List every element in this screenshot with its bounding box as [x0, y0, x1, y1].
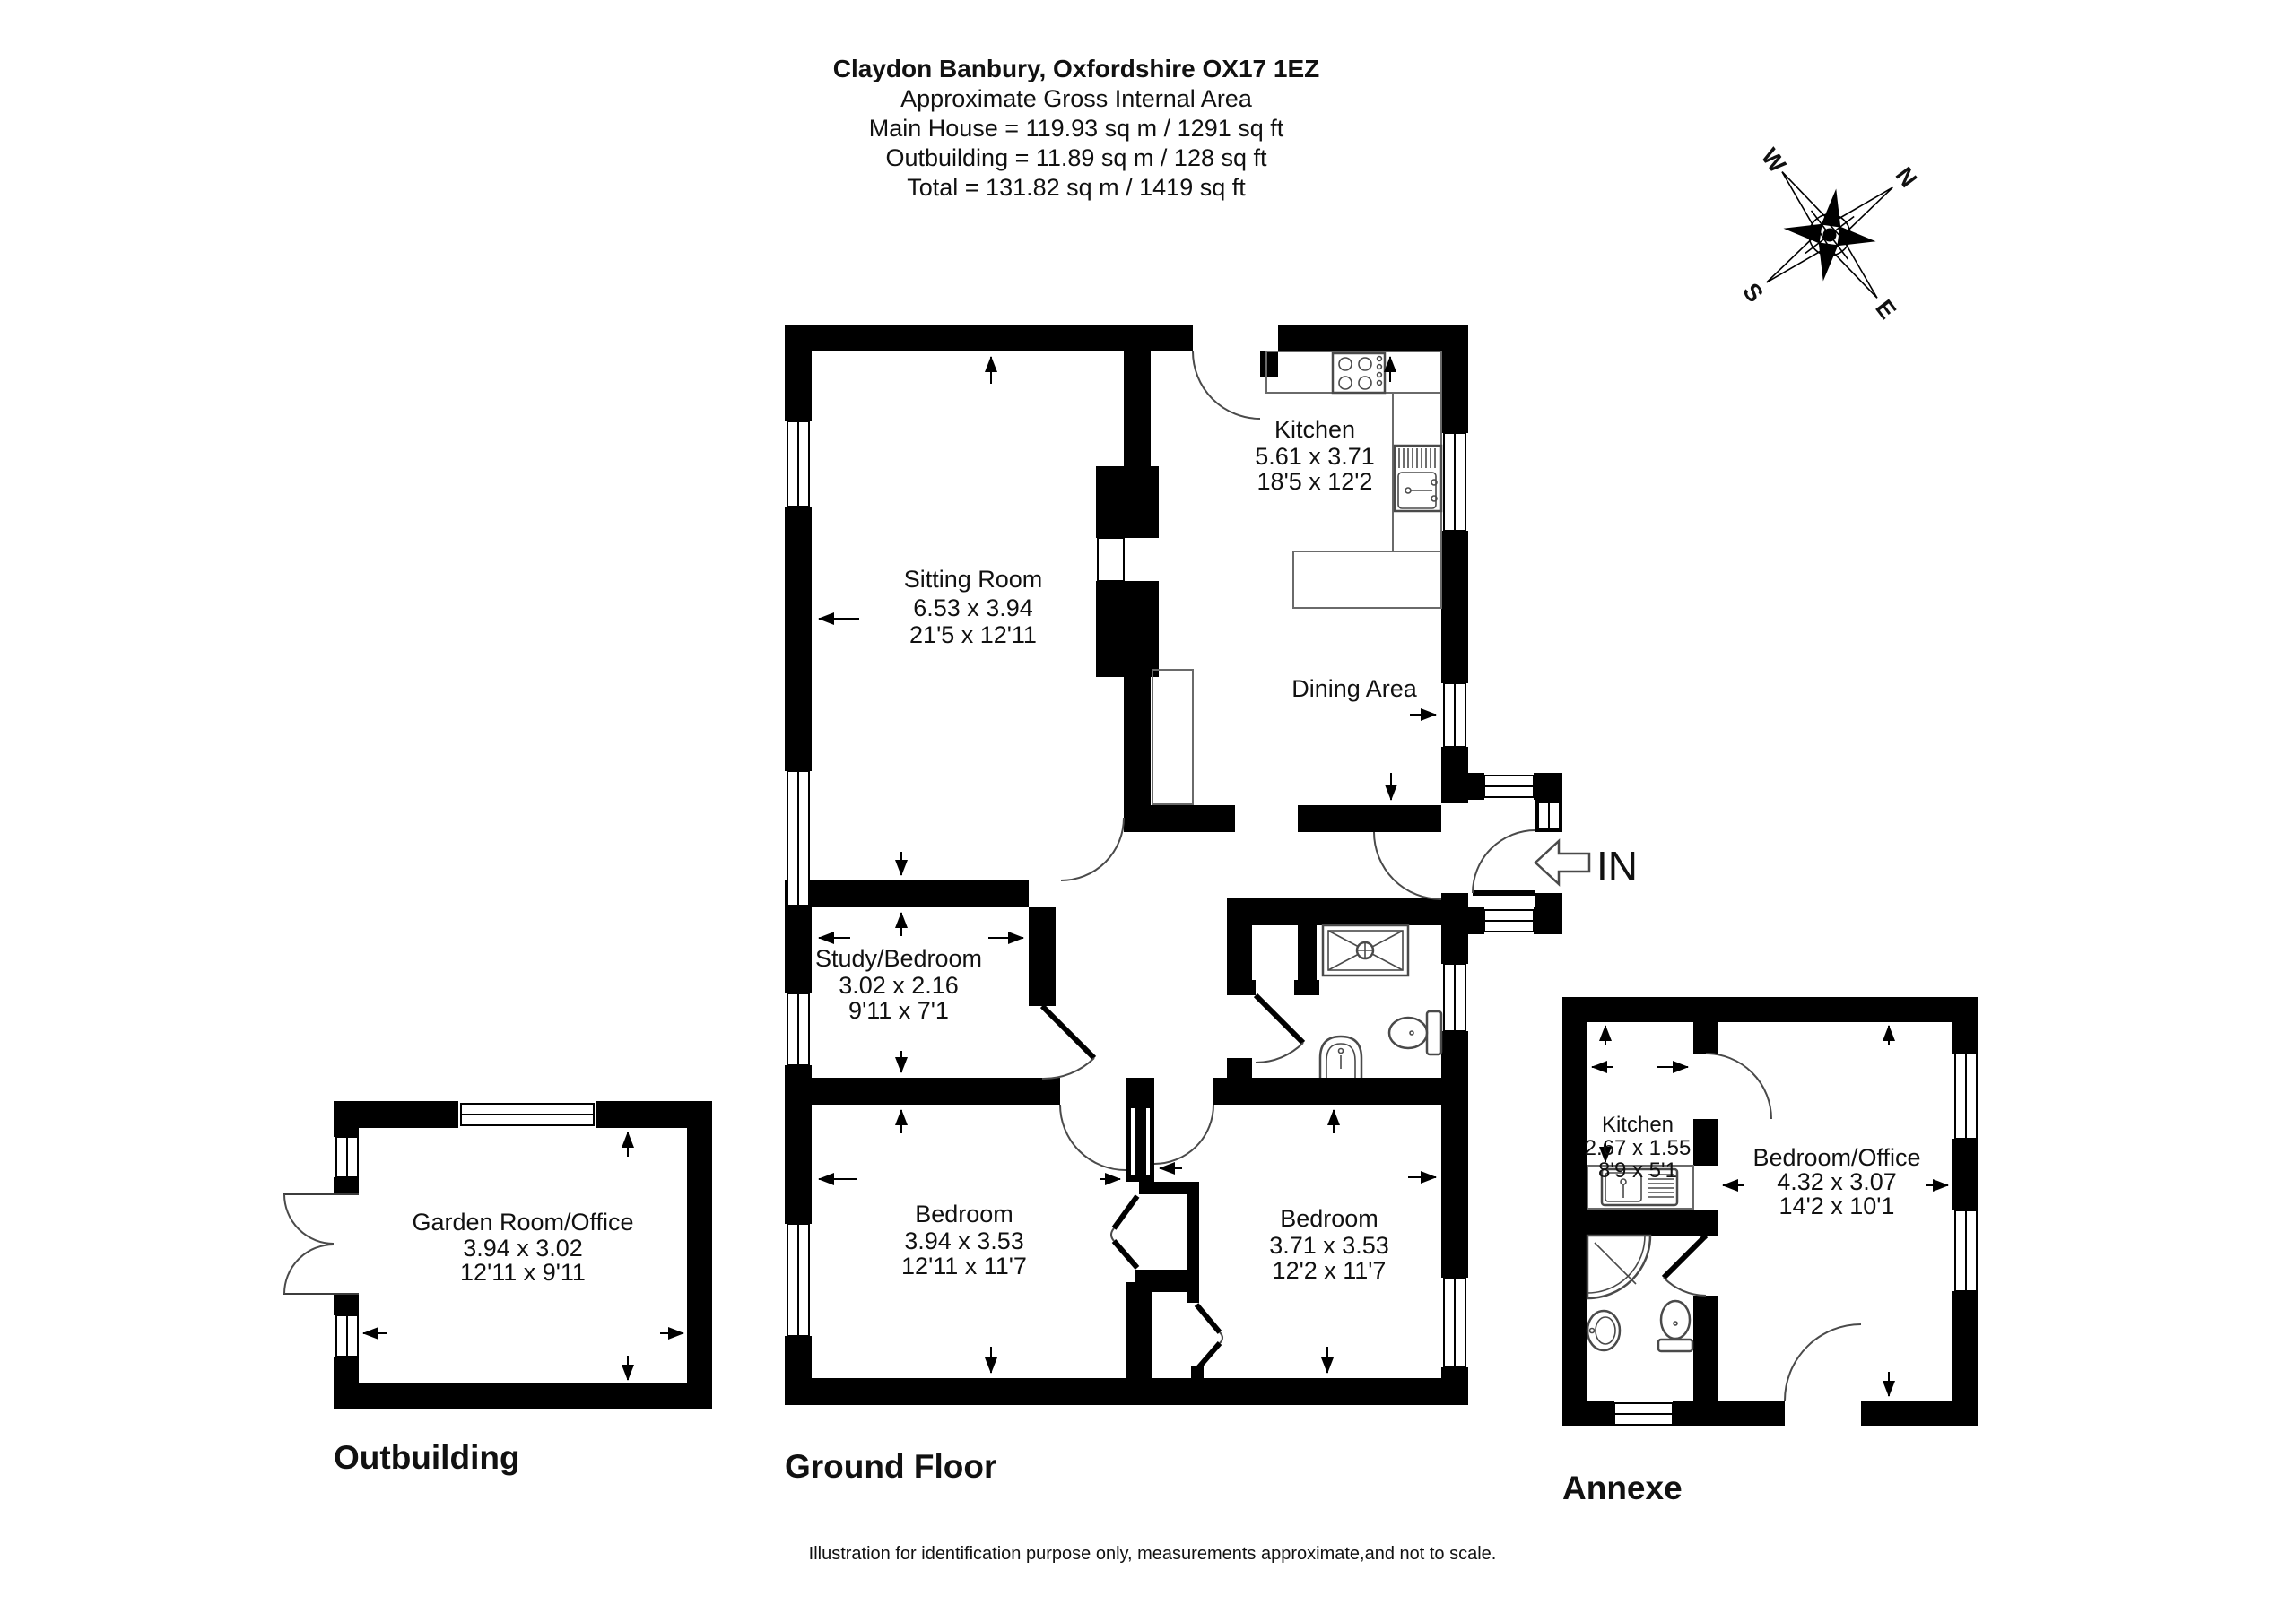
entrance-marker: IN	[1535, 841, 1638, 889]
dining-side-unit	[1152, 670, 1193, 804]
bathroom-door-arc	[1256, 1043, 1303, 1063]
room-dim-metric: 3.94 x 3.53	[904, 1227, 1024, 1254]
annexe-toilet-icon	[1658, 1301, 1692, 1351]
window-glyph	[787, 421, 809, 507]
sitting-hall-door-arc	[1061, 818, 1124, 880]
bedroom1-door-arc	[1060, 1105, 1126, 1170]
room-label-bedroom-2: Bedroom 3.71 x 3.53 12'2 x 11'7	[1269, 1205, 1389, 1284]
floorplan-drawing: IN	[0, 0, 2296, 1622]
annexe-kitchen-door-arc	[1706, 1054, 1771, 1119]
room-dim-metric: 2.67 x 1.55	[1585, 1136, 1692, 1160]
room-dim-metric: 6.53 x 3.94	[913, 594, 1033, 621]
basin-icon	[1320, 1037, 1361, 1078]
window-glyph	[1444, 1278, 1465, 1367]
outbuilding-double-doors	[283, 1194, 359, 1294]
hall-door-arc	[1374, 832, 1441, 899]
annexe-shower-icon	[1587, 1236, 1650, 1298]
annexe-plan	[1562, 997, 1978, 1426]
toilet-icon	[1389, 1011, 1441, 1054]
room-name: Dining Area	[1291, 675, 1418, 702]
room-name: Garden Room/Office	[412, 1209, 633, 1236]
room-dim-imperial: 12'11 x 11'7	[901, 1253, 1027, 1279]
room-label-annexe-kitchen: Kitchen 2.67 x 1.55 8'9 x 5'1	[1585, 1113, 1692, 1183]
compass-e-label: E	[1870, 295, 1901, 324]
window-glyph	[461, 1104, 594, 1125]
room-label-dining-area: Dining Area	[1291, 675, 1418, 702]
annexe-basin-icon	[1587, 1311, 1620, 1350]
floorplan-sheet: Claydon Banbury, Oxfordshire OX17 1EZ Ap…	[0, 0, 2296, 1622]
room-dim-imperial: 21'5 x 12'11	[909, 621, 1037, 648]
window-glyph	[787, 771, 809, 906]
disclaimer-text: Illustration for identification purpose …	[809, 1544, 1497, 1565]
room-label-bedroom-1: Bedroom 3.94 x 3.53 12'11 x 11'7	[901, 1201, 1027, 1279]
section-label-outbuilding: Outbuilding	[334, 1439, 520, 1476]
window-glyph	[1484, 910, 1534, 932]
room-label-kitchen: Kitchen 5.61 x 3.71 18'5 x 12'2	[1255, 416, 1375, 495]
annexe-shower-door-arc	[1664, 1278, 1706, 1296]
room-dim-metric: 5.61 x 3.71	[1255, 443, 1375, 470]
study-door-leaf	[1042, 1006, 1094, 1058]
annexe-shower-door-leaf	[1664, 1236, 1706, 1278]
room-name: Kitchen	[1274, 416, 1355, 443]
kitchen-door-arc	[1193, 351, 1260, 419]
room-dim-imperial: 12'2 x 11'7	[1273, 1257, 1387, 1284]
window-glyph	[1955, 1054, 1977, 1139]
section-label-annexe: Annexe	[1562, 1470, 1683, 1506]
dining-unit	[1293, 551, 1441, 608]
window-glyph	[1444, 433, 1465, 531]
compass-w-label: W	[1756, 143, 1792, 178]
window-glyph	[1484, 776, 1534, 797]
window-glyph	[787, 1224, 809, 1336]
room-dim-metric: 3.02 x 2.16	[839, 972, 959, 999]
compass-rose: N E S W	[1679, 85, 1978, 381]
window-glyph	[1614, 1403, 1673, 1425]
room-name: Study/Bedroom	[815, 945, 982, 972]
section-label-ground-floor: Ground Floor	[785, 1448, 996, 1485]
shower-icon	[1323, 925, 1408, 976]
bathroom-door-leaf	[1256, 995, 1303, 1043]
room-name: Bedroom	[1280, 1205, 1378, 1232]
compass-s-label: S	[1737, 278, 1769, 307]
room-label-sitting-room: Sitting Room 6.53 x 3.94 21'5 x 12'11	[904, 566, 1043, 648]
room-label-study-bedroom: Study/Bedroom 3.02 x 2.16 9'11 x 7'1	[815, 945, 982, 1024]
compass-n-label: N	[1891, 162, 1923, 193]
bedroom2-door-arc	[1154, 1105, 1213, 1164]
room-dim-metric: 3.94 x 3.02	[463, 1235, 583, 1262]
room-dim-imperial: 8'9 x 5'1	[1598, 1158, 1677, 1183]
kitchen-sink-icon	[1395, 446, 1441, 511]
room-name: Kitchen	[1602, 1113, 1674, 1137]
room-dim-imperial: 12'11 x 9'11	[460, 1259, 586, 1286]
study-door-arc	[1042, 1058, 1094, 1079]
room-name: Bedroom/Office	[1752, 1144, 1920, 1171]
room-dim-imperial: 14'2 x 10'1	[1779, 1193, 1895, 1219]
entrance-door-arc	[1473, 830, 1535, 893]
entrance-in-arrow-icon	[1535, 841, 1589, 884]
annexe-entrance-door-arc	[1785, 1324, 1861, 1401]
room-label-garden-room: Garden Room/Office 3.94 x 3.02 12'11 x 9…	[412, 1209, 633, 1286]
entrance-in-label: IN	[1596, 843, 1638, 889]
room-dim-imperial: 18'5 x 12'2	[1257, 468, 1373, 495]
room-name: Sitting Room	[904, 566, 1043, 593]
hob-icon	[1333, 353, 1385, 393]
compass-points	[1719, 125, 1940, 345]
room-dim-imperial: 9'11 x 7'1	[848, 997, 949, 1024]
window-glyph	[1955, 1210, 1977, 1291]
window-glyph	[1444, 683, 1465, 747]
room-name: Bedroom	[915, 1201, 1013, 1227]
room-label-annexe-bedroom: Bedroom/Office 4.32 x 3.07 14'2 x 10'1	[1752, 1144, 1920, 1219]
window-glyph	[1444, 964, 1465, 1031]
room-dim-metric: 4.32 x 3.07	[1777, 1168, 1897, 1195]
bathroom-fixtures	[1320, 925, 1441, 1078]
window-glyph	[336, 1315, 358, 1357]
window-glyph	[787, 993, 809, 1065]
window-glyph	[1538, 802, 1560, 829]
window-glyph	[336, 1137, 358, 1177]
room-dim-metric: 3.71 x 3.53	[1269, 1232, 1389, 1259]
